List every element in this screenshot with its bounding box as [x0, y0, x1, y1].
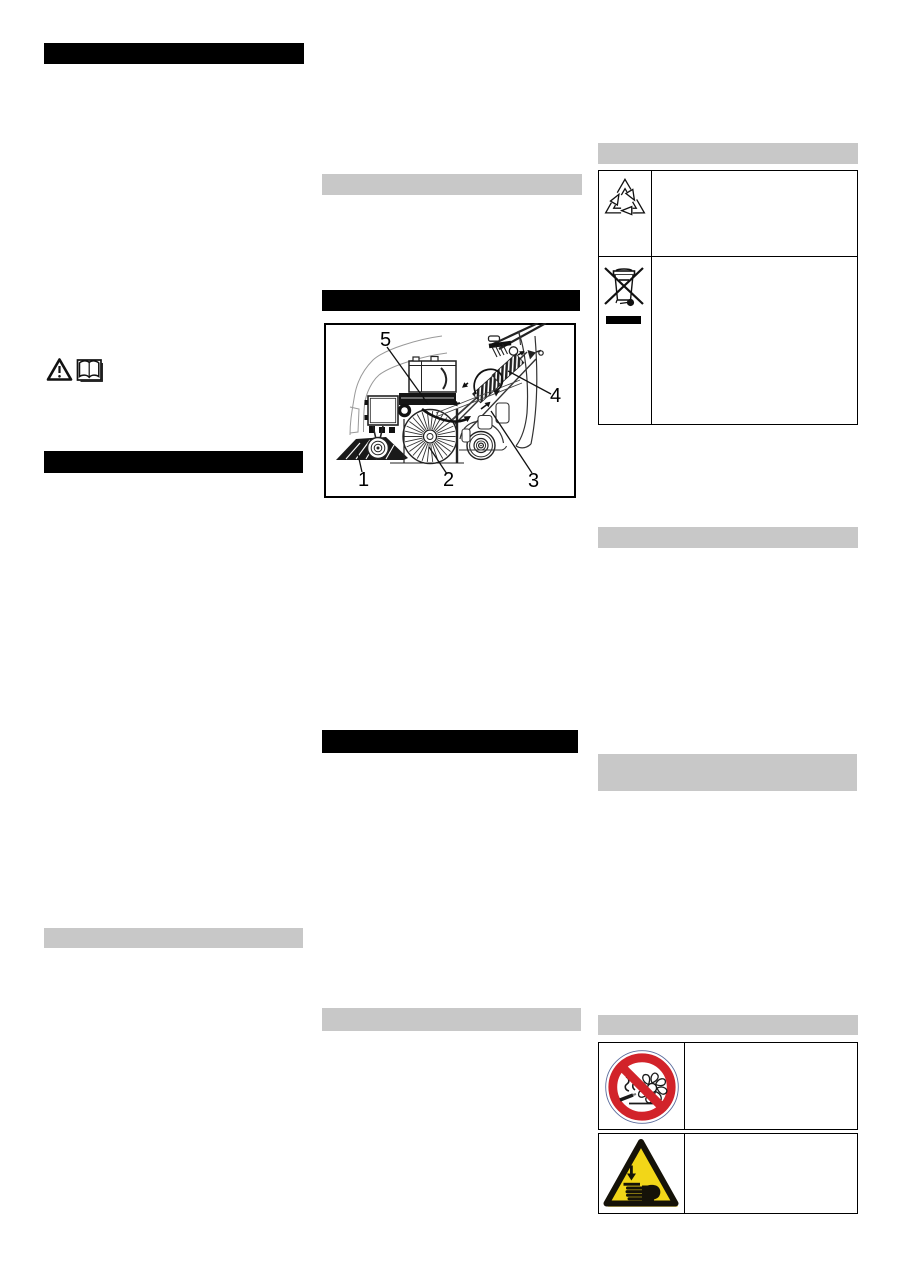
svg-text:3: 3: [528, 470, 539, 492]
svg-text:1: 1: [358, 469, 369, 491]
svg-text:4: 4: [550, 385, 561, 407]
svg-text:2: 2: [443, 469, 454, 491]
svg-text:5: 5: [380, 329, 391, 351]
